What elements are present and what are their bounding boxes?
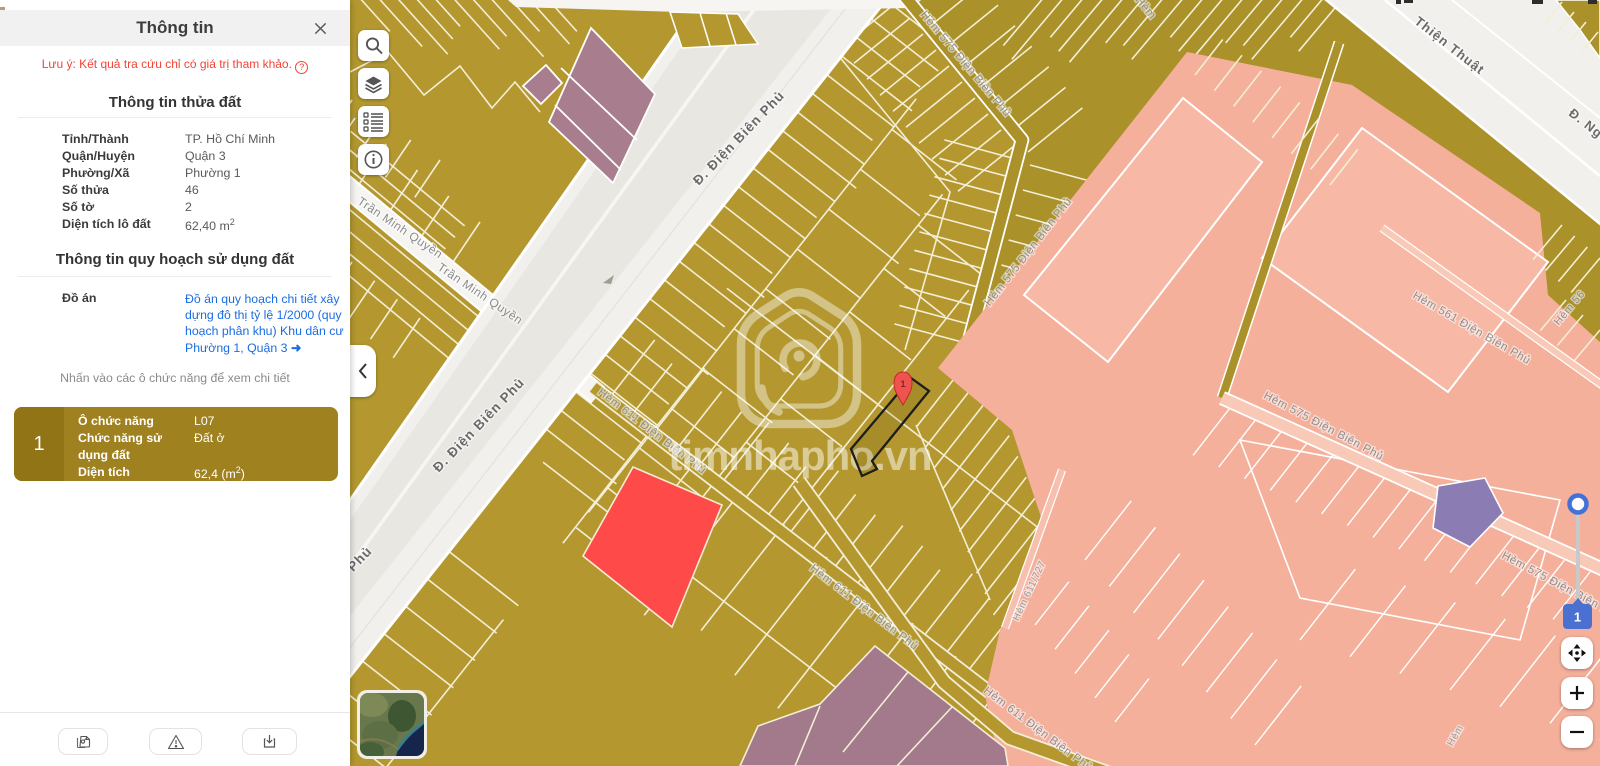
svg-text:1: 1 — [900, 379, 906, 390]
svg-text:1: 1 — [1574, 610, 1581, 625]
svg-text:timnhapho.vn: timnhapho.vn — [668, 432, 931, 479]
